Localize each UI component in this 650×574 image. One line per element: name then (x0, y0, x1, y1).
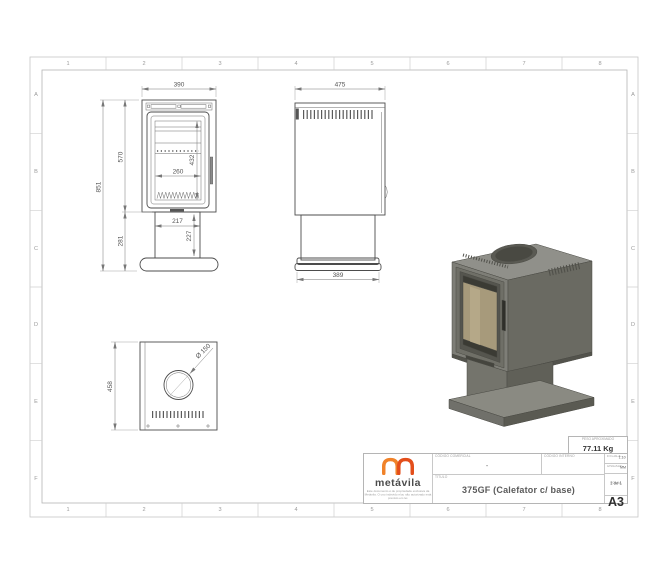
grid-row-right-D: D (630, 322, 634, 328)
grid-col-bottom-8: 8 (598, 507, 601, 513)
dim-overall-height: 851 (96, 181, 103, 192)
grid-row-left-D: D (34, 322, 38, 328)
grid-row-right-A: A (631, 92, 635, 98)
grid-col-top-3: 3 (218, 61, 221, 67)
bottom-vent (170, 209, 184, 211)
front-view: 390 851 570 281 432 260 217 227 (96, 82, 219, 272)
grid-col-top-1: 1 (66, 61, 69, 67)
grid-col-bottom-4: 4 (294, 507, 297, 513)
grid-row-left-A: A (34, 92, 38, 98)
flame-decor (157, 192, 199, 199)
grid-row-right-F: F (631, 476, 634, 482)
dim-glass-height: 432 (189, 154, 196, 165)
grid-row-left-B: B (34, 169, 38, 175)
grid-col-bottom-7: 7 (522, 507, 525, 513)
dim-base-depth: 389 (333, 272, 344, 279)
grid-col-top-4: 4 (294, 61, 297, 67)
dim-glass-width: 260 (173, 169, 184, 176)
grid-col-top-5: 5 (370, 61, 373, 67)
grid-col-top-2: 2 (142, 61, 145, 67)
dim-lower-height: 281 (118, 235, 125, 246)
grid-col-bottom-3: 3 (218, 507, 221, 513)
dim-depth: 475 (335, 82, 346, 89)
grid-col-bottom-1: 1 (66, 507, 69, 513)
grid-row-left-E: E (34, 399, 38, 405)
side-view: 475 389 (295, 82, 387, 284)
grid-col-bottom-5: 5 (370, 507, 373, 513)
dim-top-depth: 458 (107, 381, 114, 392)
drawing-canvas: 390 851 570 281 432 260 217 227 (0, 0, 650, 574)
dim-pedestal-width: 217 (172, 218, 183, 225)
dim-pedestal-height: 227 (186, 230, 193, 241)
grid-col-top-6: 6 (446, 61, 449, 67)
grid-row-right-B: B (631, 169, 635, 175)
grid-col-top-8: 8 (598, 61, 601, 67)
grid-col-top-7: 7 (522, 61, 525, 67)
drawing-sheet: 390 851 570 281 432 260 217 227 (0, 0, 650, 574)
iso-handle (502, 300, 506, 331)
dim-front-width: 390 (174, 82, 185, 89)
grid-row-right-E: E (631, 399, 635, 405)
grid-row-right-C: C (630, 246, 634, 252)
iso-view (449, 242, 594, 427)
grid-col-bottom-2: 2 (142, 507, 145, 513)
grid-row-left-F: F (34, 476, 37, 482)
top-view: Ø 150 458 (107, 342, 217, 430)
grid-row-left-C: C (34, 246, 38, 252)
grid-col-bottom-6: 6 (446, 507, 449, 513)
door-handle (210, 157, 213, 184)
dim-body-height: 570 (118, 151, 125, 162)
